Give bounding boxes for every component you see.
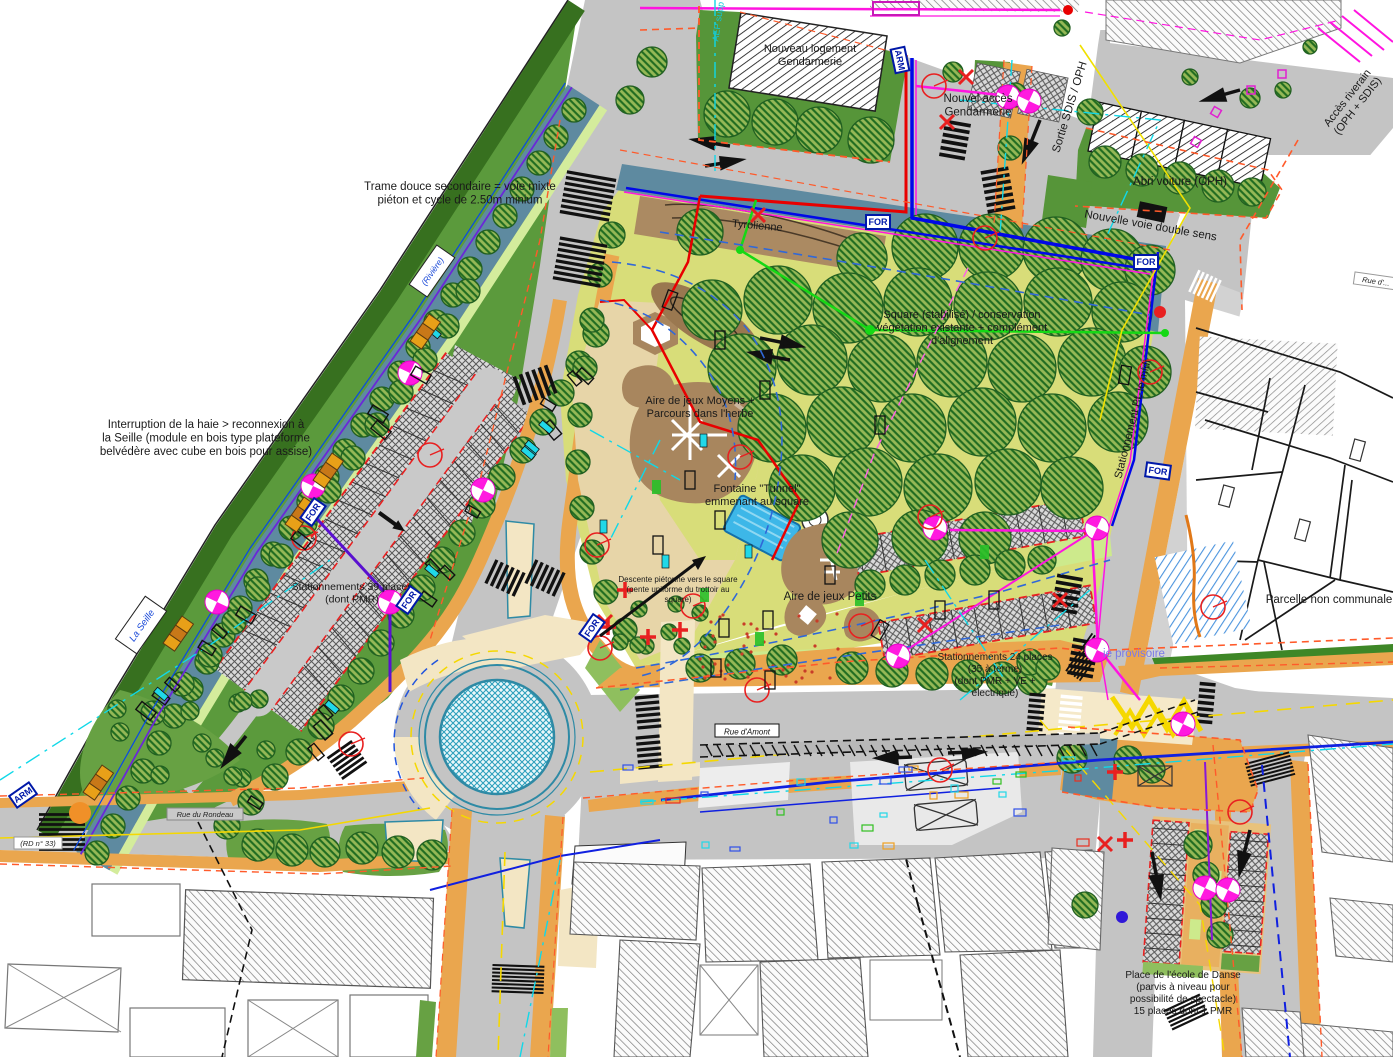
svg-text:Aire de jeux Petits: Aire de jeux Petits bbox=[784, 591, 877, 603]
svg-text:Parcelle non communale: Parcelle non communale bbox=[1266, 594, 1393, 606]
svg-text:Rue du Rondeau: Rue du Rondeau bbox=[177, 810, 235, 819]
svg-text:Aire de jeux Moyens +Parcours: Aire de jeux Moyens +Parcours dans l'her… bbox=[645, 395, 754, 420]
svg-text:FOR: FOR bbox=[869, 217, 888, 227]
svg-text:Fontaine "Tunnel"emmenant au s: Fontaine "Tunnel"emmenant au square bbox=[705, 483, 809, 508]
svg-text:ie: ie bbox=[1103, 648, 1112, 660]
svg-text:Trame douce secondaire = voie: Trame douce secondaire = voie mixtepiéto… bbox=[364, 181, 556, 207]
svg-text:(RD n° 33): (RD n° 33) bbox=[20, 839, 56, 848]
svg-text:provisoire: provisoire bbox=[1115, 648, 1165, 660]
svg-text:Nouvel accèsGendarmerie: Nouvel accèsGendarmerie bbox=[943, 93, 1012, 119]
svg-text:Place de l'école de Danse(parv: Place de l'école de Danse(parvis à nivea… bbox=[1125, 970, 1241, 1017]
svg-text:FOR: FOR bbox=[1137, 257, 1156, 267]
svg-text:Rue d'Amont: Rue d'Amont bbox=[724, 728, 771, 737]
svg-text:Abri voiture (OPH): Abri voiture (OPH) bbox=[1133, 176, 1227, 188]
svg-text:Interruption de la haie > reco: Interruption de la haie > reconnexion àl… bbox=[100, 419, 312, 458]
